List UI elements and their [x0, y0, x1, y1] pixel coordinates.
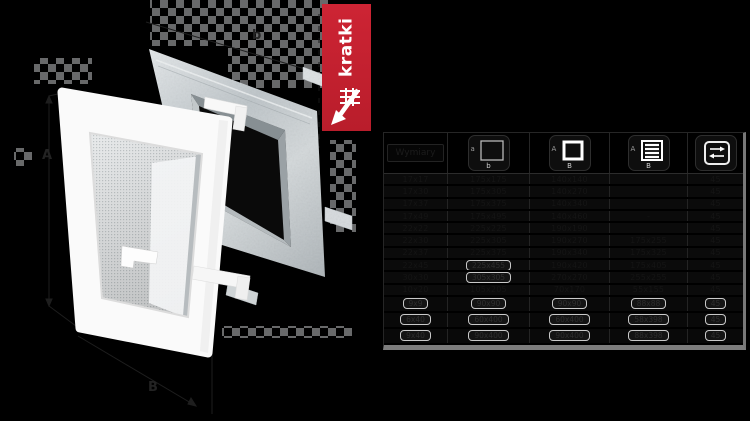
table-cell: 17x37	[384, 199, 448, 209]
brand-banner: kratki	[322, 4, 371, 131]
table-cell: 10x20	[384, 285, 448, 295]
table-cell: 45	[688, 211, 743, 221]
table-cell: 45	[688, 260, 743, 270]
table-cell: 175x175	[448, 174, 530, 184]
table-cell: 45	[688, 223, 743, 233]
table-row: 9x4090x40090x40088x39845	[384, 329, 743, 345]
table-cell: 22x45	[384, 260, 448, 270]
table-cell	[610, 174, 688, 184]
table-row: 6x4060x40060x40058x39845	[384, 313, 743, 329]
table-cell: 105x205	[448, 285, 530, 295]
table-cell: 88x88	[610, 297, 688, 311]
table-row: 9x990x9090x9088x8845	[384, 297, 743, 313]
table-cell: 30x30	[384, 272, 448, 282]
table-row: 22x22225x225190x19045	[384, 223, 743, 235]
table-cell: 190x340	[530, 248, 610, 258]
table-cell: 140x340	[530, 199, 610, 209]
table-row: 17x49175x495140x460-45	[384, 211, 743, 223]
header-louvered-front: A B	[610, 133, 688, 173]
table-cell: -	[610, 211, 688, 221]
table-cell	[610, 186, 688, 196]
table-cell: 22x37	[384, 248, 448, 258]
white-ventilation-grille	[62, 92, 250, 353]
table-cell: 60x400	[448, 313, 530, 327]
table-cell: 45	[688, 235, 743, 245]
table-cell: 225x375	[448, 248, 530, 258]
table-cell: 90x90	[530, 297, 610, 311]
table-cell: 175x405	[610, 260, 688, 270]
table-cell: 190x420	[530, 260, 610, 270]
table-cell: 175x255	[610, 235, 688, 245]
table-cell: 17x49	[384, 211, 448, 221]
table-header: Wymiary a b A B	[384, 133, 743, 174]
table-cell: 270x270	[530, 272, 610, 282]
brand-name: kratki	[322, 8, 371, 87]
table-row: 22x30225x305190x270175x25545	[384, 235, 743, 247]
table-cell: 225x305	[448, 235, 530, 245]
dimension-label-b: b	[252, 28, 261, 43]
table-cell	[610, 223, 688, 233]
table-cell: 305x305	[448, 272, 530, 282]
table-cell: 45	[688, 248, 743, 258]
kratki-grille-arrow-icon	[329, 86, 365, 128]
table-row: 17x30175x305140x27045	[384, 186, 743, 198]
table-cell: 175x495	[448, 211, 530, 221]
table-row: 30x30305x305270x270255x25545	[384, 272, 743, 284]
table-cell: 90x90	[448, 297, 530, 311]
icon-label-A: A	[552, 145, 557, 153]
table-cell: 45	[688, 186, 743, 196]
table-cell: 6x40	[384, 313, 448, 327]
header-mounting-hole: A B	[530, 133, 610, 173]
table-cell: 45	[688, 329, 743, 343]
table-cell: 17x30	[384, 186, 448, 196]
dimension-label-A: A	[42, 148, 52, 163]
table-row: 17x37175x375140x34045	[384, 199, 743, 211]
icon-label-b: b	[469, 162, 509, 170]
table-cell: 60x400	[530, 313, 610, 327]
table-cell: 45	[688, 272, 743, 282]
table-cell: 88x398	[610, 329, 688, 343]
table-row: 17x17175x175140x14045	[384, 174, 743, 186]
table-cell: 140x460	[530, 211, 610, 221]
table-cell: 90x400	[448, 329, 530, 343]
icon-label-B: B	[550, 162, 590, 170]
table-cell: 45	[688, 199, 743, 209]
icon-label-a: a	[471, 145, 475, 153]
table-cell: 175x375	[448, 199, 530, 209]
header-outer-dimensions: a b	[448, 133, 530, 173]
table-row: 22x37225x375190x340175x32545	[384, 248, 743, 260]
square-outline-icon: a b	[468, 135, 510, 171]
table-cell: 55x155	[610, 285, 688, 295]
icon-label-A: A	[631, 145, 636, 153]
table-cell: 45	[688, 297, 743, 311]
square-thick-outline-icon: A B	[549, 135, 591, 171]
header-size-column: Wymiary	[384, 133, 448, 173]
table-cell: 140x270	[530, 186, 610, 196]
table-cell: 22x30	[384, 235, 448, 245]
table-cell: 9x40	[384, 329, 448, 343]
table-cell: 45	[688, 174, 743, 184]
icon-label-B: B	[629, 162, 669, 170]
table-cell: 175x325	[610, 248, 688, 258]
table-cell: 225x455	[448, 260, 530, 270]
table-cell: 70x170	[530, 285, 610, 295]
table-body: 17x17175x175140x1404517x30175x305140x270…	[384, 174, 743, 345]
table-cell: 175x305	[448, 186, 530, 196]
table-cell: 90x400	[530, 329, 610, 343]
table-row: 10x20105x20570x17055x15545	[384, 285, 743, 297]
louvered-square-icon: A B	[628, 135, 670, 171]
table-cell: 190x270	[530, 235, 610, 245]
table-cell: 45	[688, 313, 743, 327]
table-cell: 45	[688, 285, 743, 295]
table-cell: 255x255	[610, 272, 688, 282]
double-arrow-icon	[695, 135, 737, 171]
table-cell: 17x17	[384, 174, 448, 184]
header-depth	[688, 133, 743, 173]
table-cell	[610, 199, 688, 209]
product-sheet: A b B kratki Wymiary a	[0, 0, 750, 421]
table-cell: 140x140	[530, 174, 610, 184]
table-row: 22x45225x455190x420175x40545	[384, 260, 743, 272]
table-cell: 58x398	[610, 313, 688, 327]
table-cell: 190x190	[530, 223, 610, 233]
dimension-table: Wymiary a b A B	[383, 132, 746, 350]
table-cell: 225x225	[448, 223, 530, 233]
dimension-label-B: B	[148, 380, 158, 395]
corner-label: Wymiary	[387, 144, 445, 162]
table-cell: 9x9	[384, 297, 448, 311]
table-cell: 22x22	[384, 223, 448, 233]
